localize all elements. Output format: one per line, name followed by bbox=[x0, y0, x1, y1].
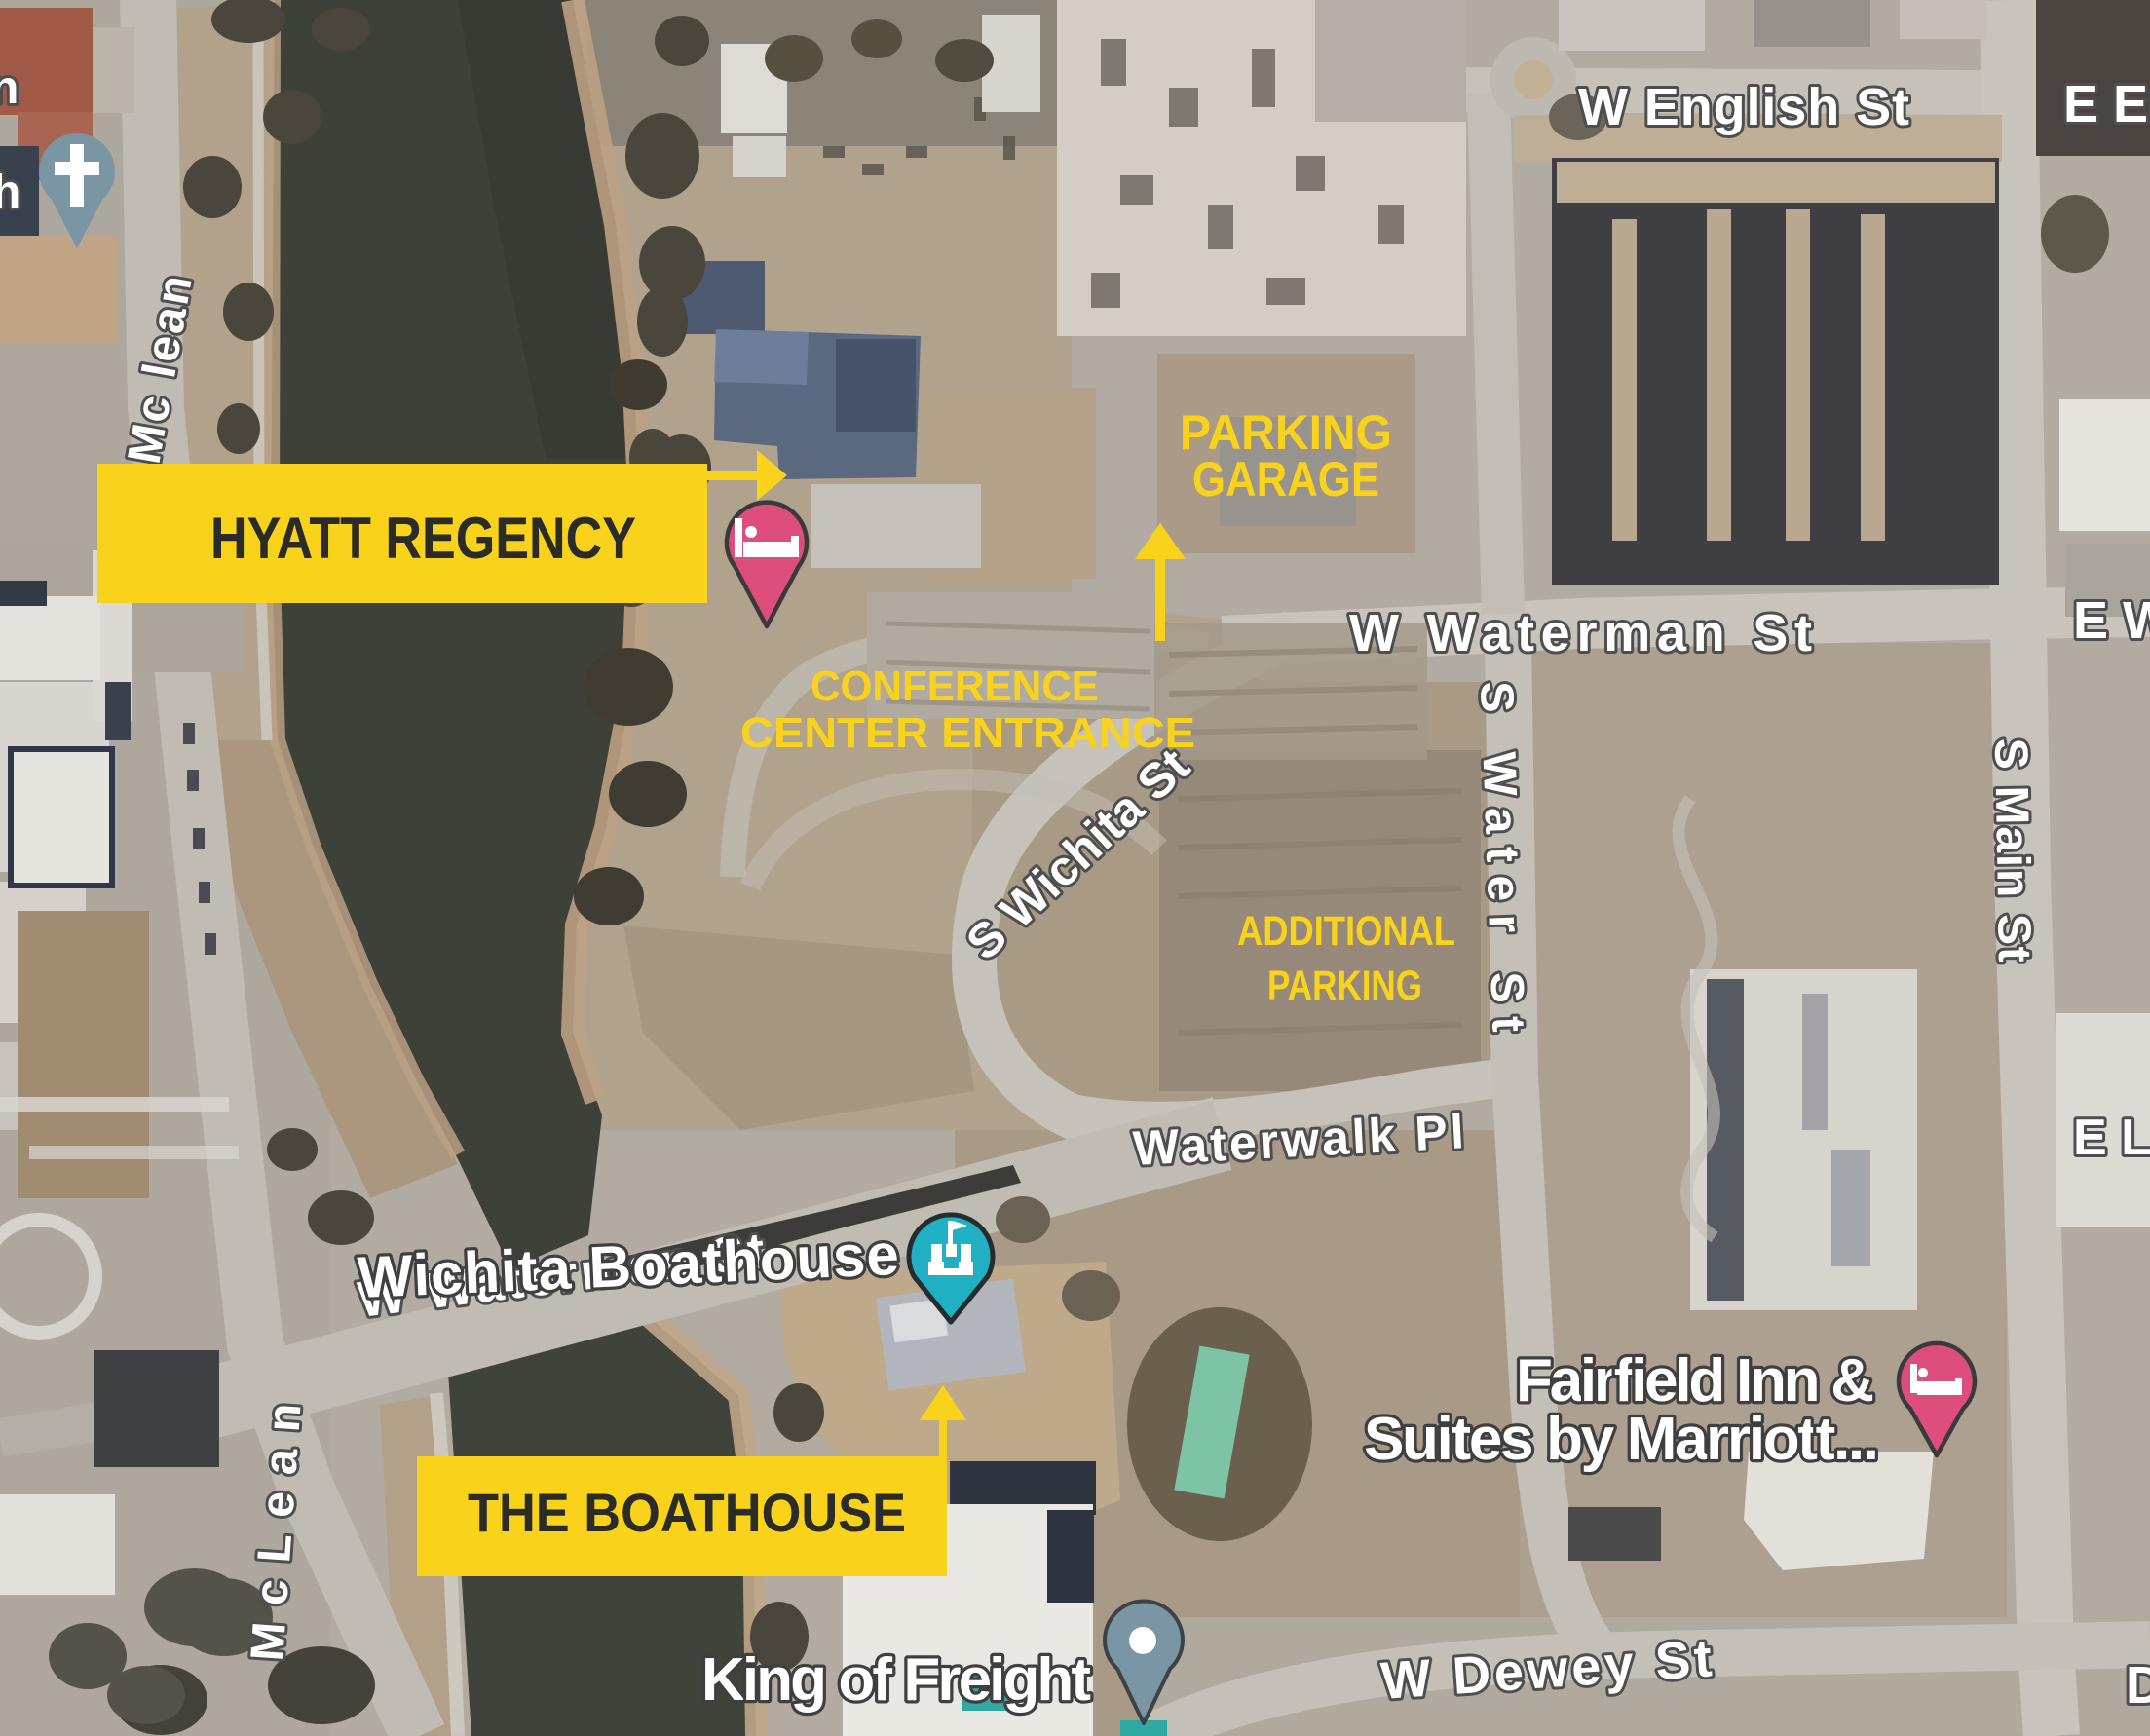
svg-text:King of Freight: King of Freight bbox=[701, 1646, 1091, 1714]
svg-text:Fairfield Inn &: Fairfield Inn & bbox=[1516, 1347, 1874, 1415]
svg-text:W English St: W English St bbox=[1578, 78, 1909, 136]
svg-text:W Waterman St: W Waterman St bbox=[1349, 604, 1812, 662]
svg-text:Dr: Dr bbox=[2126, 1656, 2150, 1715]
svg-text:ADDITIONAL: ADDITIONAL bbox=[1237, 908, 1455, 955]
svg-text:PARKING: PARKING bbox=[1267, 962, 1422, 1009]
svg-text:THE BOATHOUSE: THE BOATHOUSE bbox=[468, 1482, 906, 1543]
svg-text:CONFERENCE: CONFERENCE bbox=[811, 662, 1099, 710]
svg-text:S Main St: S Main St bbox=[1984, 737, 2040, 962]
svg-text:n: n bbox=[0, 62, 19, 114]
svg-text:Suites by Marriott...: Suites by Marriott... bbox=[1364, 1406, 1879, 1473]
svg-text:E Waterman St: E Waterman St bbox=[2073, 591, 2150, 650]
svg-text:E Lewis St: E Lewis St bbox=[2073, 1110, 2150, 1166]
svg-text:E English St: E English St bbox=[2063, 75, 2150, 133]
svg-text:h: h bbox=[0, 167, 20, 218]
svg-text:CENTER ENTRANCE: CENTER ENTRANCE bbox=[740, 709, 1195, 757]
svg-text:HYATT REGENCY: HYATT REGENCY bbox=[210, 506, 636, 571]
svg-text:GARAGE: GARAGE bbox=[1192, 452, 1379, 507]
